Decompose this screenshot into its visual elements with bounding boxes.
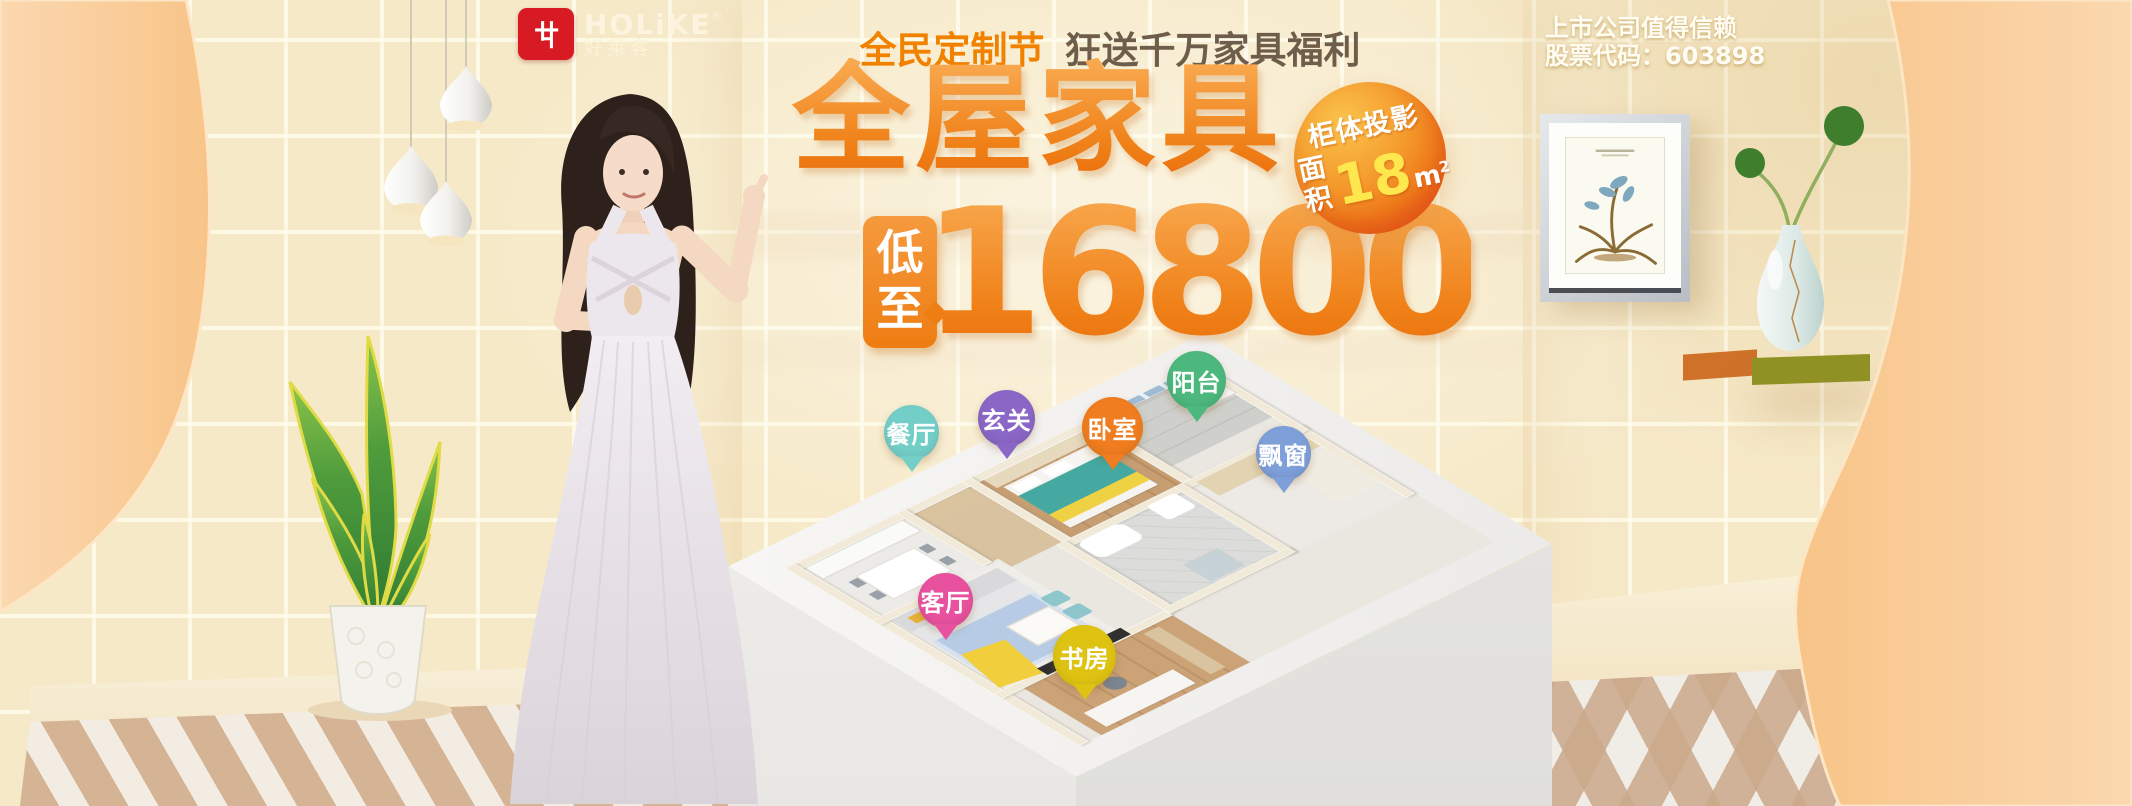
room-label-study-circle: 书房 [1053, 625, 1116, 688]
botanical-illustration-icon [1566, 138, 1664, 273]
room-label-dining-tail [900, 456, 924, 472]
wall-picture-frame [1540, 114, 1690, 302]
room-label-bay-window-circle: 飘窗 [1256, 426, 1311, 481]
room-label-living-room: 客厅 [918, 573, 973, 628]
room-label-balcony-tail [1185, 406, 1209, 422]
room-label-bedroom-tail [1101, 454, 1125, 470]
badge-value: 18 [1330, 148, 1415, 212]
room-label-dining-text: 餐厅 [887, 415, 937, 450]
room-label-bedroom-text: 卧室 [1088, 410, 1138, 445]
room-label-bedroom: 卧室 [1082, 397, 1143, 458]
room-label-balcony-circle: 阳台 [1167, 351, 1226, 410]
room-label-entry-text: 玄关 [982, 401, 1032, 436]
room-label-study-text: 书房 [1060, 639, 1110, 674]
room-label-entry-circle: 玄关 [978, 390, 1035, 447]
projection-area-badge-content: 柜体投影 面积 18 m2 [1286, 97, 1454, 220]
brand-name-cn: 好莱客 [584, 39, 723, 59]
room-label-balcony-text: 阳台 [1172, 363, 1222, 398]
main-title: 全屋家具 [758, 58, 1318, 182]
room-label-entry: 玄关 [978, 390, 1035, 447]
room-label-bay-window-text: 飘窗 [1259, 436, 1309, 471]
price-prefix-char2: 至 [877, 284, 924, 336]
room-label-living-room-text: 客厅 [921, 583, 971, 618]
brand-name-en: HOLiKE [584, 8, 712, 41]
shelf-right-board [1752, 354, 1870, 385]
room-label-bedroom-circle: 卧室 [1082, 397, 1143, 458]
brand-wordmark: HOLiKE® 好莱客 [584, 8, 723, 59]
room-label-dining-circle: 餐厅 [884, 405, 939, 460]
room-label-living-room-circle: 客厅 [918, 573, 973, 628]
brand-logo[interactable]: HOLiKE® 好莱客 [518, 8, 723, 60]
botanical-print [1565, 137, 1665, 274]
room-label-study-tail [1073, 684, 1097, 700]
room-label-study: 书房 [1053, 625, 1116, 688]
room-label-entry-tail [995, 443, 1019, 459]
holike-logo-icon [518, 8, 574, 60]
stock-code-line: 股票代码：603898 [1545, 42, 1765, 70]
listed-company-info: 上市公司值得信赖 股票代码：603898 [1545, 14, 1765, 70]
registered-mark: ® [712, 9, 723, 22]
price-prefix-char1: 低 [877, 228, 924, 280]
room-label-dining: 餐厅 [884, 405, 939, 460]
room-label-balcony: 阳台 [1167, 351, 1226, 410]
listed-company-trust-line: 上市公司值得信赖 [1545, 14, 1765, 42]
holike-monogram-icon [527, 14, 565, 54]
shelf-left-board [1683, 349, 1757, 380]
projection-area-badge: 柜体投影 面积 18 m2 [1294, 82, 1446, 234]
room-label-bay-window-tail [1272, 477, 1296, 493]
room-label-living-room-tail [934, 624, 958, 640]
room-label-bay-window: 飘窗 [1256, 426, 1311, 481]
promo-banner[interactable]: 餐厅 玄关 卧室 阳台 飘窗 客厅 书房 [0, 0, 2132, 806]
picture-mat [1549, 123, 1681, 293]
